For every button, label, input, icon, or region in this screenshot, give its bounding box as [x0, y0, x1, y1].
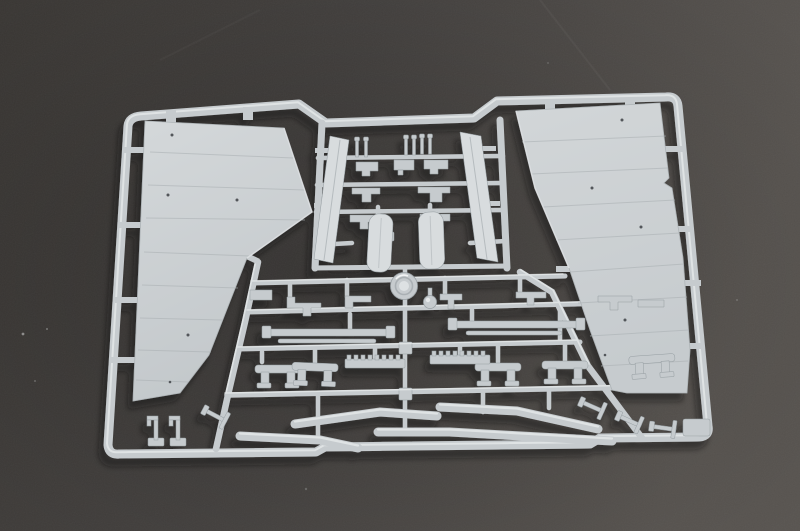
tread-strip-right — [430, 351, 490, 364]
corner-tab — [683, 419, 710, 436]
hub-disc — [391, 273, 418, 300]
photo-canvas — [0, 0, 800, 531]
left-door-paddle — [366, 213, 393, 272]
right-door-paddle — [418, 212, 445, 270]
tread-strip-left — [345, 355, 405, 368]
